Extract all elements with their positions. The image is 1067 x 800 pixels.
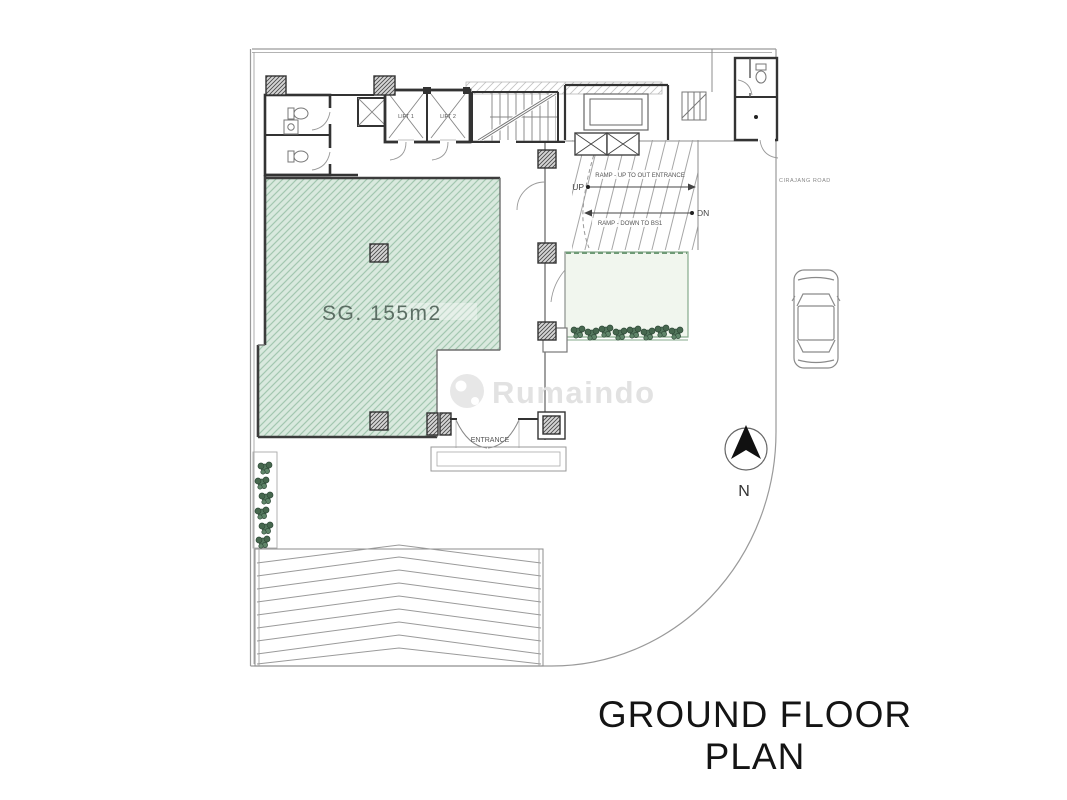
ramp-up-label: RAMP - UP TO OUT ENTRANCE [595, 173, 684, 179]
door-arc [760, 140, 778, 158]
lift1-label: LIFT 1 [398, 114, 414, 120]
entrance-canopy [431, 447, 566, 471]
sink-icon [284, 120, 298, 134]
page-title: GROUND FLOOR PLAN [565, 694, 945, 778]
compass-label: N [738, 483, 750, 500]
paved-court [255, 545, 543, 666]
watermark-logo-icon [450, 374, 484, 408]
door-arc [390, 142, 406, 160]
service-stair [682, 92, 706, 120]
guard-rooms [735, 58, 778, 158]
hall-area-label: SG. 155m2 [322, 302, 442, 325]
ramp-up-short: UP [572, 182, 584, 192]
floor-plan-drawing: SG. 155m2 [0, 0, 1067, 800]
guard-post-dot [754, 115, 758, 119]
door-arc [432, 142, 448, 160]
planter-strip [253, 452, 277, 548]
ramp-down-label: RAMP - DOWN TO BS1 [598, 221, 663, 227]
louvre-boxes [575, 133, 639, 155]
car-icon [792, 270, 840, 368]
garden-court [543, 252, 688, 352]
door-arc [517, 182, 545, 210]
watermark: Rumaindo [450, 374, 656, 410]
shaft [358, 98, 386, 126]
road-label: CIRAJANG ROAD [779, 178, 831, 184]
entrance-label: ENTRANCE [471, 437, 510, 444]
staircase [470, 92, 565, 142]
lift2-label: LIFT 2 [440, 114, 456, 120]
floor-plan-page: SG. 155m2 [0, 0, 1067, 800]
ramp-down-short: DN [697, 208, 709, 218]
door-arc [551, 270, 565, 302]
north-compass: N [725, 425, 767, 500]
watermark-text: Rumaindo [492, 375, 656, 410]
lift-block: LIFT 1 LIFT 2 [382, 87, 470, 160]
ramp-area: RAMP - UP TO OUT ENTRANCE UP DN RAMP - D… [572, 133, 709, 250]
wc-icon [756, 64, 766, 83]
